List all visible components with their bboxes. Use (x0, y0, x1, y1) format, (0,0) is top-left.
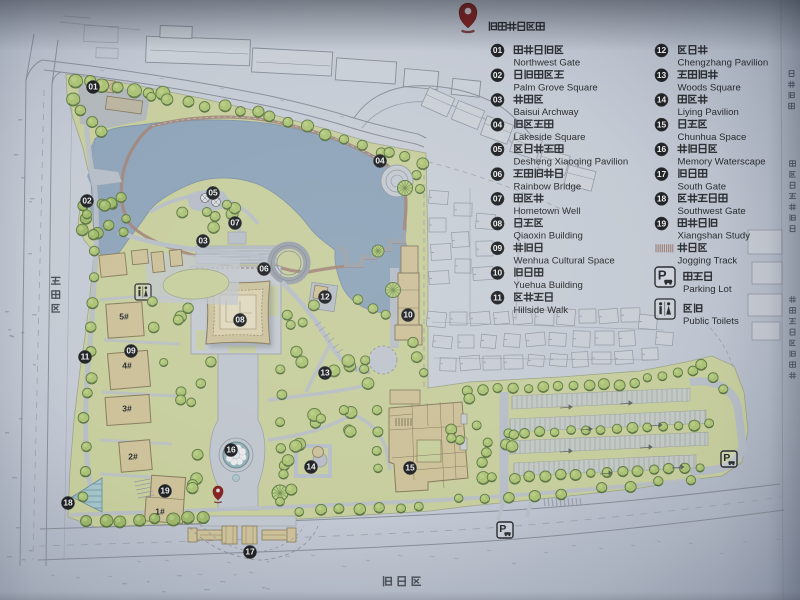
svg-text:11: 11 (81, 352, 90, 362)
svg-text:Hometown Well: Hometown Well (514, 206, 581, 217)
svg-text:09: 09 (493, 243, 503, 253)
svg-text:19: 19 (657, 218, 667, 228)
svg-text:Yuehua Building: Yuehua Building (514, 280, 583, 291)
svg-text:Memory Waterscape: Memory Waterscape (678, 157, 766, 168)
svg-text:4#: 4# (122, 360, 132, 370)
svg-text:14: 14 (657, 95, 667, 105)
svg-text:17: 17 (657, 169, 667, 179)
svg-text:Chengzhang Pavilion: Chengzhang Pavilion (678, 58, 769, 69)
svg-text:Qiaoxin Building: Qiaoxin Building (514, 231, 583, 242)
svg-text:Desheng Xiaoqing Pavilion: Desheng Xiaoqing Pavilion (514, 157, 629, 168)
svg-text:12: 12 (320, 292, 330, 302)
svg-text:16: 16 (226, 445, 236, 455)
svg-text:08: 08 (235, 315, 245, 325)
svg-text:10: 10 (493, 268, 503, 278)
svg-text:16: 16 (657, 144, 667, 154)
svg-text:06: 06 (493, 169, 503, 179)
svg-text:03: 03 (198, 236, 208, 246)
svg-text:15: 15 (657, 119, 667, 129)
svg-text:12: 12 (657, 45, 667, 55)
svg-text:18: 18 (657, 194, 667, 204)
svg-text:Jogging Track: Jogging Track (678, 256, 738, 267)
svg-text:03: 03 (493, 95, 503, 105)
svg-text:Hillside Walk: Hillside Walk (514, 305, 569, 316)
svg-text:15: 15 (405, 463, 415, 473)
svg-text:2#: 2# (128, 451, 138, 461)
svg-text:13: 13 (657, 70, 667, 80)
svg-text:Southwest Gate: Southwest Gate (678, 206, 746, 217)
svg-text:04: 04 (493, 119, 503, 129)
svg-text:02: 02 (493, 70, 503, 80)
svg-text:Wenhua Cultural Space: Wenhua Cultural Space (514, 255, 615, 266)
svg-text:Palm Grove Square: Palm Grove Square (514, 82, 598, 93)
svg-text:08: 08 (493, 218, 503, 228)
svg-text:Baisui Archway: Baisui Archway (514, 107, 579, 118)
svg-text:Chunhua Space: Chunhua Space (678, 132, 747, 143)
svg-text:Parking Lot: Parking Lot (683, 284, 732, 295)
svg-text:01: 01 (493, 45, 503, 55)
svg-text:01: 01 (88, 82, 98, 92)
svg-text:3#: 3# (122, 403, 132, 413)
svg-text:Public Toilets: Public Toilets (683, 316, 739, 327)
svg-text:07: 07 (230, 218, 240, 228)
svg-text:05: 05 (493, 144, 503, 154)
svg-text:04: 04 (375, 156, 385, 166)
svg-text:Woods Square: Woods Square (678, 82, 741, 93)
svg-text:09: 09 (126, 346, 136, 356)
svg-text:1#: 1# (155, 506, 165, 516)
svg-text:South Gate: South Gate (678, 181, 727, 192)
svg-text:10: 10 (403, 310, 413, 320)
svg-text:Lakeside Square: Lakeside Square (514, 132, 586, 143)
svg-text:07: 07 (493, 194, 503, 204)
svg-text:06: 06 (259, 264, 269, 274)
svg-text:Northwest Gate: Northwest Gate (514, 58, 581, 69)
svg-text:19: 19 (160, 486, 170, 496)
svg-text:05: 05 (208, 188, 218, 198)
svg-text:13: 13 (320, 368, 330, 378)
svg-text:5#: 5# (119, 311, 129, 321)
svg-text:18: 18 (63, 498, 73, 508)
svg-text:Rainbow Bridge: Rainbow Bridge (514, 181, 582, 192)
svg-text:14: 14 (306, 462, 316, 472)
svg-text:Liying Pavilion: Liying Pavilion (678, 107, 739, 118)
svg-text:Xiangshan Study: Xiangshan Study (678, 231, 751, 242)
svg-text:02: 02 (82, 196, 92, 206)
svg-text:11: 11 (493, 292, 502, 302)
svg-text:17: 17 (245, 547, 255, 557)
